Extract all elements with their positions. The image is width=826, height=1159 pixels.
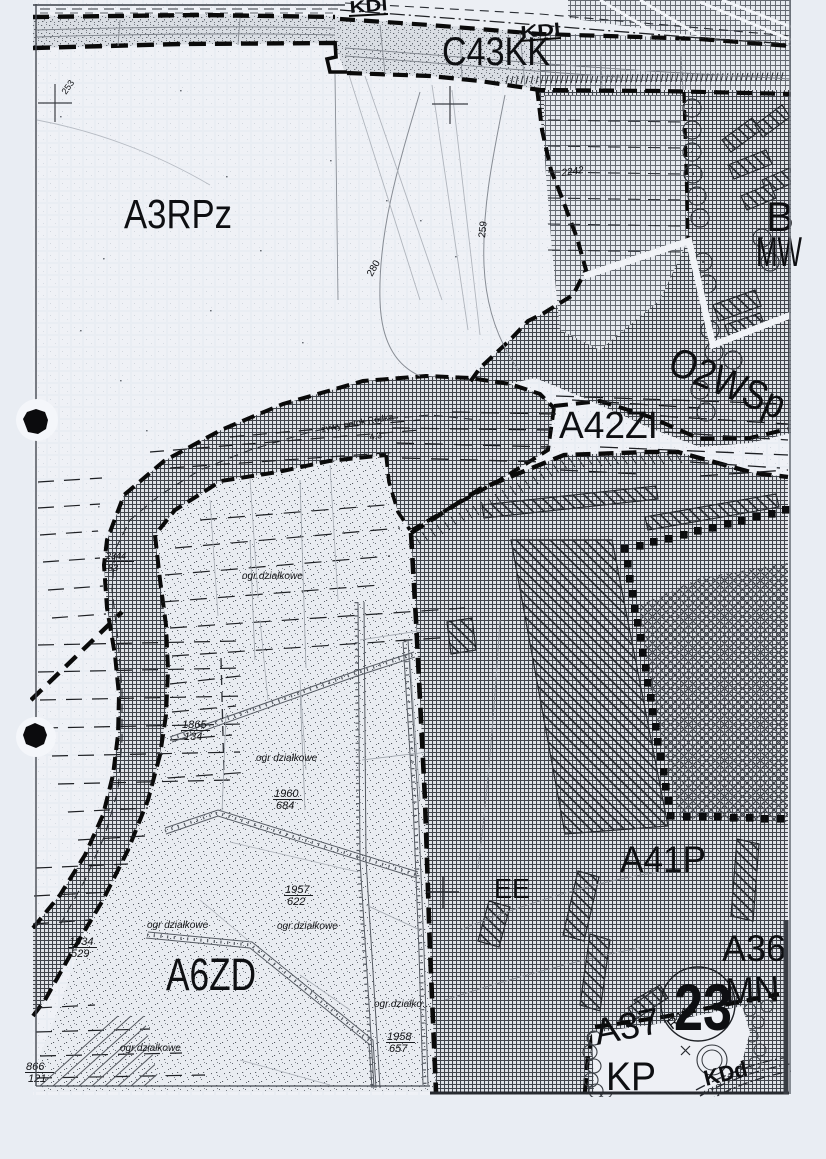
svg-text:EE: EE [494, 873, 530, 904]
svg-text:622: 622 [287, 896, 305, 908]
svg-text:A36: A36 [722, 928, 786, 969]
svg-text:529: 529 [71, 948, 89, 960]
svg-text:1960: 1960 [274, 788, 299, 800]
svg-text:684: 684 [276, 800, 294, 812]
svg-text:MW: MW [756, 228, 802, 275]
svg-text:1934: 1934 [69, 936, 93, 948]
svg-text:1957: 1957 [285, 884, 310, 896]
svg-text:MN: MN [724, 968, 780, 1012]
svg-text:1865: 1865 [182, 719, 207, 731]
svg-text:A42ZI: A42ZI [559, 405, 658, 447]
svg-text:ogr.działko…: ogr.działko… [374, 999, 432, 1010]
svg-text:2344: 2344 [105, 551, 126, 561]
svg-text:134: 134 [184, 731, 202, 743]
svg-text:4,3: 4,3 [369, 430, 383, 442]
svg-text:A6ZD: A6ZD [166, 949, 256, 1000]
svg-text:259: 259 [477, 220, 490, 238]
svg-text:A3RPz: A3RPz [124, 191, 232, 237]
svg-text:ogr.działkowe: ogr.działkowe [120, 1043, 181, 1054]
svg-text:121: 121 [28, 1073, 46, 1085]
svg-text:ogr.działkowe: ogr.działkowe [277, 921, 338, 932]
svg-text:1958: 1958 [387, 1031, 412, 1043]
svg-text:83: 83 [108, 563, 118, 573]
svg-text:657: 657 [389, 1043, 408, 1055]
svg-text:ogr.działkowe: ogr.działkowe [242, 571, 303, 582]
svg-text:ogr działkowe: ogr działkowe [256, 753, 318, 764]
svg-text:ogr działkowe: ogr działkowe [147, 920, 209, 931]
svg-text:A41P: A41P [620, 839, 706, 880]
